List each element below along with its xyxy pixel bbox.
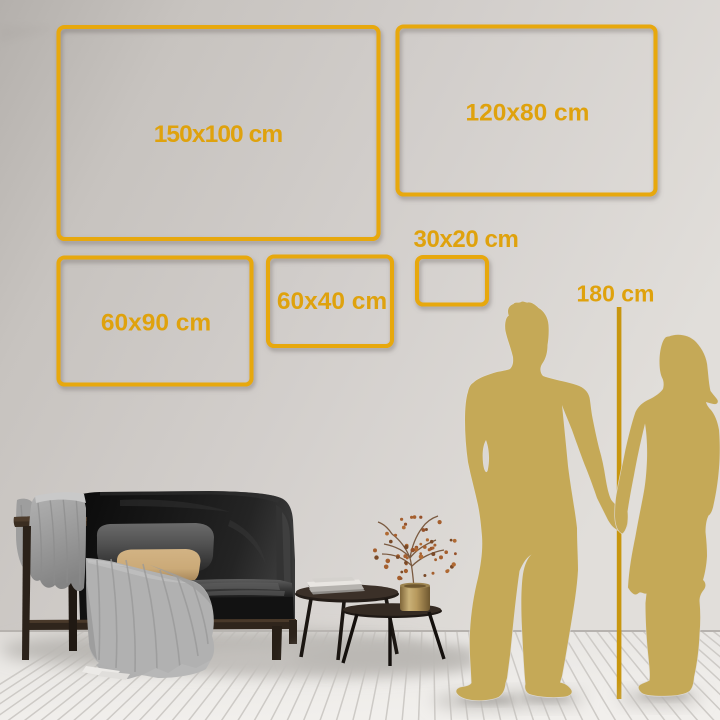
svg-text:150x100 cm: 150x100 cm: [154, 121, 283, 148]
svg-text:180 cm: 180 cm: [576, 281, 654, 307]
svg-text:60x40 cm: 60x40 cm: [277, 288, 387, 315]
svg-text:120x80 cm: 120x80 cm: [466, 100, 590, 127]
svg-text:30x20 cm: 30x20 cm: [414, 226, 519, 253]
svg-text:60x90 cm: 60x90 cm: [101, 310, 211, 337]
